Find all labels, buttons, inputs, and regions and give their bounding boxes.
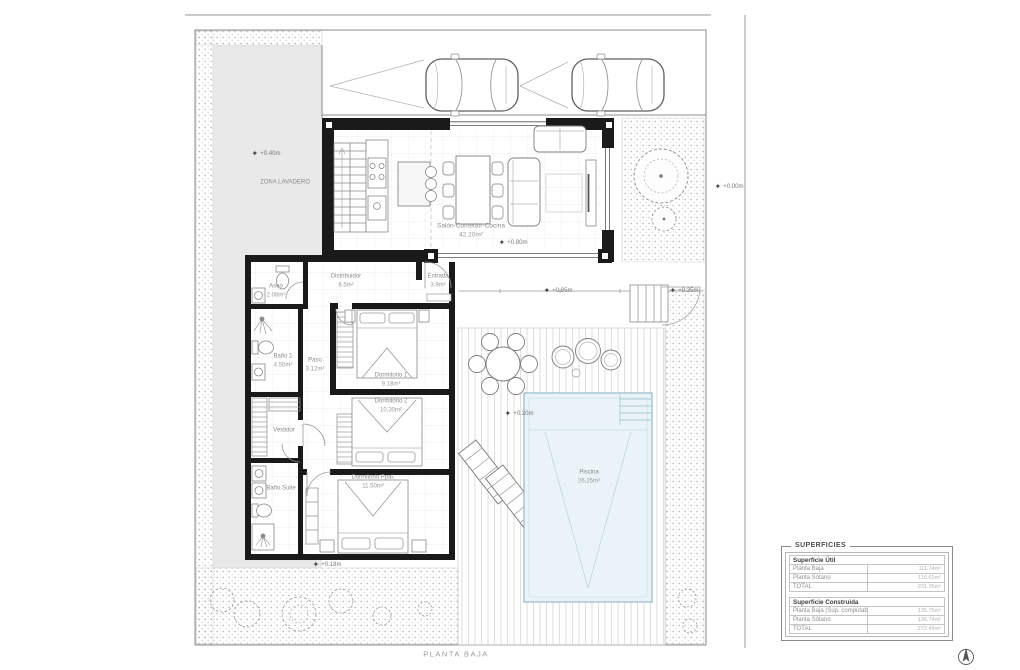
room-label-dorm1: Dormitorio 1 9.18m² [375,371,408,388]
room-label-dorm-ppal: Dormitorio Ppal. 11.50m² [351,473,394,490]
superficie-util-table: Superficie Útil Planta Baja 111.74m² Pla… [789,555,945,592]
table-row: Planta Baja 111.74m² [790,565,945,574]
kitchen-island [398,162,437,206]
util-header: Superficie Útil [790,556,945,565]
table-row: Planta Baja (Sup. computable) 135.75m² [790,607,945,616]
table-row: TOTAL 272.49m² [790,625,945,634]
construida-header: Superficie Construida [790,598,945,607]
table-row: TOTAL 231.35m² [790,583,945,592]
superficies-title: SUPERFICIES [791,542,850,549]
room-label-dorm2: Dormitorio 2 10.30m² [375,397,408,414]
sofa [508,158,540,226]
table-row: Planta Sótano 136.74m² [790,616,945,625]
room-label-salon: Salón-Comedor-Cocina 42.20m² [437,222,505,241]
room-label-bano1: Baño 1 4.50m² [273,352,292,369]
hall-console [427,294,451,301]
table-row: Planta Sótano 119.61m² [790,574,945,583]
superficies-inner: Superficie Útil Planta Baja 111.74m² Pla… [785,552,949,637]
level-icon: ✦ [544,287,551,295]
room-label-lavadero: ZONA LAVADERO [260,179,310,188]
room-label-entrada: Entrada 3.9m² [427,272,448,289]
room-label-piscina: Piscina 26.25m² [578,468,600,485]
level-icon: ✦ [252,150,259,158]
level-marker-calle: ✦ +0.00m [715,183,744,191]
superficies-panel: SUPERFICIES Superficie Útil Planta Baja … [781,546,953,641]
room-label-bano-suite: Baño Suite [266,485,295,494]
level-icon: ✦ [505,410,512,418]
level-icon: ✦ [670,287,677,295]
level-marker-porche: ✦ +0.18m [313,561,342,569]
tv-unit [586,160,596,226]
dining-table-set [443,156,503,224]
kitchen-counter [366,140,388,232]
car-2 [572,54,664,116]
superficie-construida-table: Superficie Construida Planta Baja (Sup. … [789,597,945,634]
floor-plan-sheet: ✦ +0.40m ZONA LAVADERO Salón-Comedor-Coc… [0,0,1020,670]
level-icon: ✦ [313,561,320,569]
entrance-steps [630,285,668,322]
level-icon: ✦ [499,239,506,247]
north-arrow-icon [959,648,974,665]
room-label-aseo: Aseo 2.08m² [267,282,286,299]
level-marker-salon: ✦ +0.80m [499,239,528,247]
level-icon: ✦ [715,183,722,191]
pool [524,393,652,602]
staircase [334,143,366,232]
room-label-paso: Paso 3.12m² [306,356,325,373]
bed-dorm1 [345,310,429,378]
parking-area [330,54,664,116]
loveseat [534,126,586,152]
level-marker-lavadero: ✦ +0.40m [252,150,281,158]
sheet-title: PLANTA BAJA [423,650,489,659]
level-marker-terraza: ✦ +0.20m [505,410,534,418]
room-label-vestidor: Vestidor [273,427,295,436]
level-marker-acceso: ✦ +0.35m [670,287,699,295]
room-label-distribuidor: Distribuidor 6.5m² [331,272,361,289]
car-1 [426,54,518,116]
level-marker-terraza-norte: ✦ +0.85m [544,287,573,295]
